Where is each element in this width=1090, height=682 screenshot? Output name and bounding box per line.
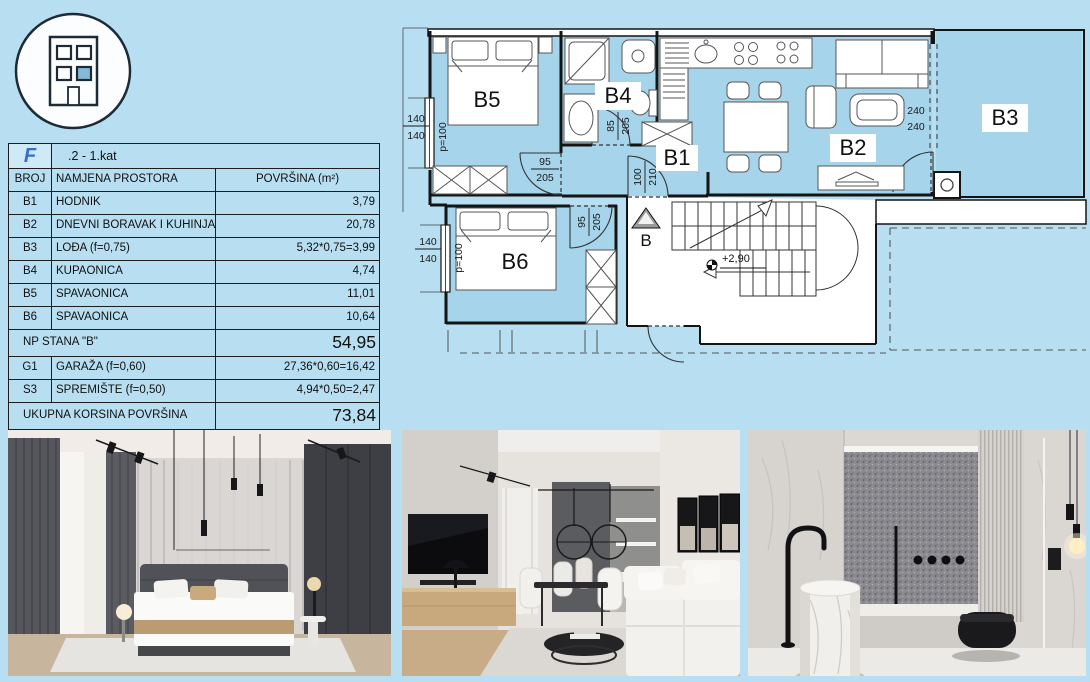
f-logo: F	[9, 144, 52, 169]
dim-b3-window-b: 240	[907, 121, 925, 133]
dim-entry-b: 210	[647, 168, 659, 186]
room-area: 3,79	[216, 192, 380, 215]
building-icon	[12, 10, 134, 132]
living-room-photo	[402, 430, 740, 676]
dim-b5-window-a: 140	[407, 113, 425, 125]
room-name: DNEVNI BORAVAK I KUHINJA	[52, 215, 216, 238]
dim-b5-parapet: p=100	[437, 122, 449, 152]
column	[934, 172, 960, 198]
room-id: B5	[9, 284, 52, 307]
dim-entry-a: 100	[632, 168, 644, 186]
total-value: 73,84	[216, 403, 380, 430]
level-value: +2,90	[722, 253, 750, 265]
room-label-b5: B5	[474, 87, 501, 112]
door-icon	[68, 87, 79, 105]
room-id: B1	[9, 192, 52, 215]
room-id: B3	[9, 238, 52, 261]
flyer-page: F .2 - 1.kat BROJ NAMJENA PROSTORA POVRŠ…	[0, 0, 1090, 682]
col-namjena: NAMJENA PROSTORA	[52, 169, 216, 192]
room-label-b6: B6	[502, 249, 529, 274]
room-area: 4,74	[216, 261, 380, 284]
table-header-row: BROJ NAMJENA PROSTORA POVRŠINA (m²)	[9, 169, 380, 192]
table-row: B4 KUPAONICA 4,74	[9, 261, 380, 284]
stairwell-area	[627, 196, 876, 344]
room-id: B4	[9, 261, 52, 284]
floor-title: .2 - 1.kat	[52, 144, 380, 169]
area-table: F .2 - 1.kat BROJ NAMJENA PROSTORA POVRŠ…	[8, 143, 380, 430]
total-row: UKUPNA KORSINA POVRŠINA 73,84	[9, 403, 380, 430]
room-id: G1	[9, 357, 52, 380]
table-row: S3 SPREMIŠTE (f=0,50) 4,94*0,50=2,47	[9, 380, 380, 403]
room-name: SPAVAONICA	[52, 284, 216, 307]
room-id: B2	[9, 215, 52, 238]
dim-b4-door-a: 85	[605, 120, 617, 132]
total-label: UKUPNA KORSINA POVRŠINA	[9, 403, 216, 430]
room-name: SPAVAONICA	[52, 307, 216, 330]
room-label-b1: B1	[664, 145, 691, 170]
room-name: GARAŽA (f=0,60)	[52, 357, 216, 380]
highlighted-unit-window	[77, 67, 91, 80]
table-row: B6 SPAVAONICA 10,64	[9, 307, 380, 330]
table-row: B5 SPAVAONICA 11,01	[9, 284, 380, 307]
room-label-b4: B4	[605, 83, 632, 108]
room-id: S3	[9, 380, 52, 403]
subtotal-value: 54,95	[216, 330, 380, 357]
table-row: B2 DNEVNI BORAVAK I KUHINJA 20,78	[9, 215, 380, 238]
dim-b6-door-a: 95	[576, 216, 588, 228]
dim-b5-door-b: 205	[536, 172, 554, 184]
dim-b6-door-b: 205	[591, 213, 603, 231]
room-name: KUPAONICA	[52, 261, 216, 284]
room-name: SPREMIŠTE (f=0,50)	[52, 380, 216, 403]
dim-b3-window-a: 240	[907, 105, 925, 117]
subtotal-label: NP STANA "B"	[9, 330, 216, 357]
room-area: 11,01	[216, 284, 380, 307]
floor-plan: +2,90 B	[400, 0, 1090, 425]
table-row: B1 HODNIK 3,79	[9, 192, 380, 215]
bedroom-photo	[8, 430, 391, 676]
table-row: G1 GARAŽA (f=0,60) 27,36*0,60=16,42	[9, 357, 380, 380]
dim-b6-window-b: 140	[419, 253, 437, 265]
table-title-row: F .2 - 1.kat	[9, 144, 380, 169]
dim-b5-door-a: 95	[539, 156, 551, 168]
entry-label: B	[640, 231, 651, 250]
room-area: 10,64	[216, 307, 380, 330]
room-name: HODNIK	[52, 192, 216, 215]
dim-b6-parapet: p=100	[453, 243, 465, 273]
col-broj: BROJ	[9, 169, 52, 192]
room-name: LOĐA (f=0,75)	[52, 238, 216, 261]
bed	[134, 592, 294, 646]
room-label-b2: B2	[840, 135, 867, 160]
table-row: B3 LOĐA (f=0,75) 5,32*0,75=3,99	[9, 238, 380, 261]
room-area: 5,32*0,75=3,99	[216, 238, 380, 261]
room-area: 20,78	[216, 215, 380, 238]
media-console	[402, 588, 516, 626]
shower-wall	[844, 452, 978, 604]
subtotal-row: NP STANA "B" 54,95	[9, 330, 380, 357]
dim-b4-door-b: 205	[620, 117, 632, 135]
dim-b6-window-a: 140	[419, 236, 437, 248]
room-area: 27,36*0,60=16,42	[216, 357, 380, 380]
room-label-b3: B3	[992, 105, 1019, 130]
room-id: B6	[9, 307, 52, 330]
room-area: 4,94*0,50=2,47	[216, 380, 380, 403]
slat-panel	[978, 430, 1024, 622]
col-povrsina: POVRŠINA (m²)	[216, 169, 380, 192]
bathroom-photo	[748, 430, 1086, 676]
dim-b5-window-b: 140	[407, 130, 425, 142]
